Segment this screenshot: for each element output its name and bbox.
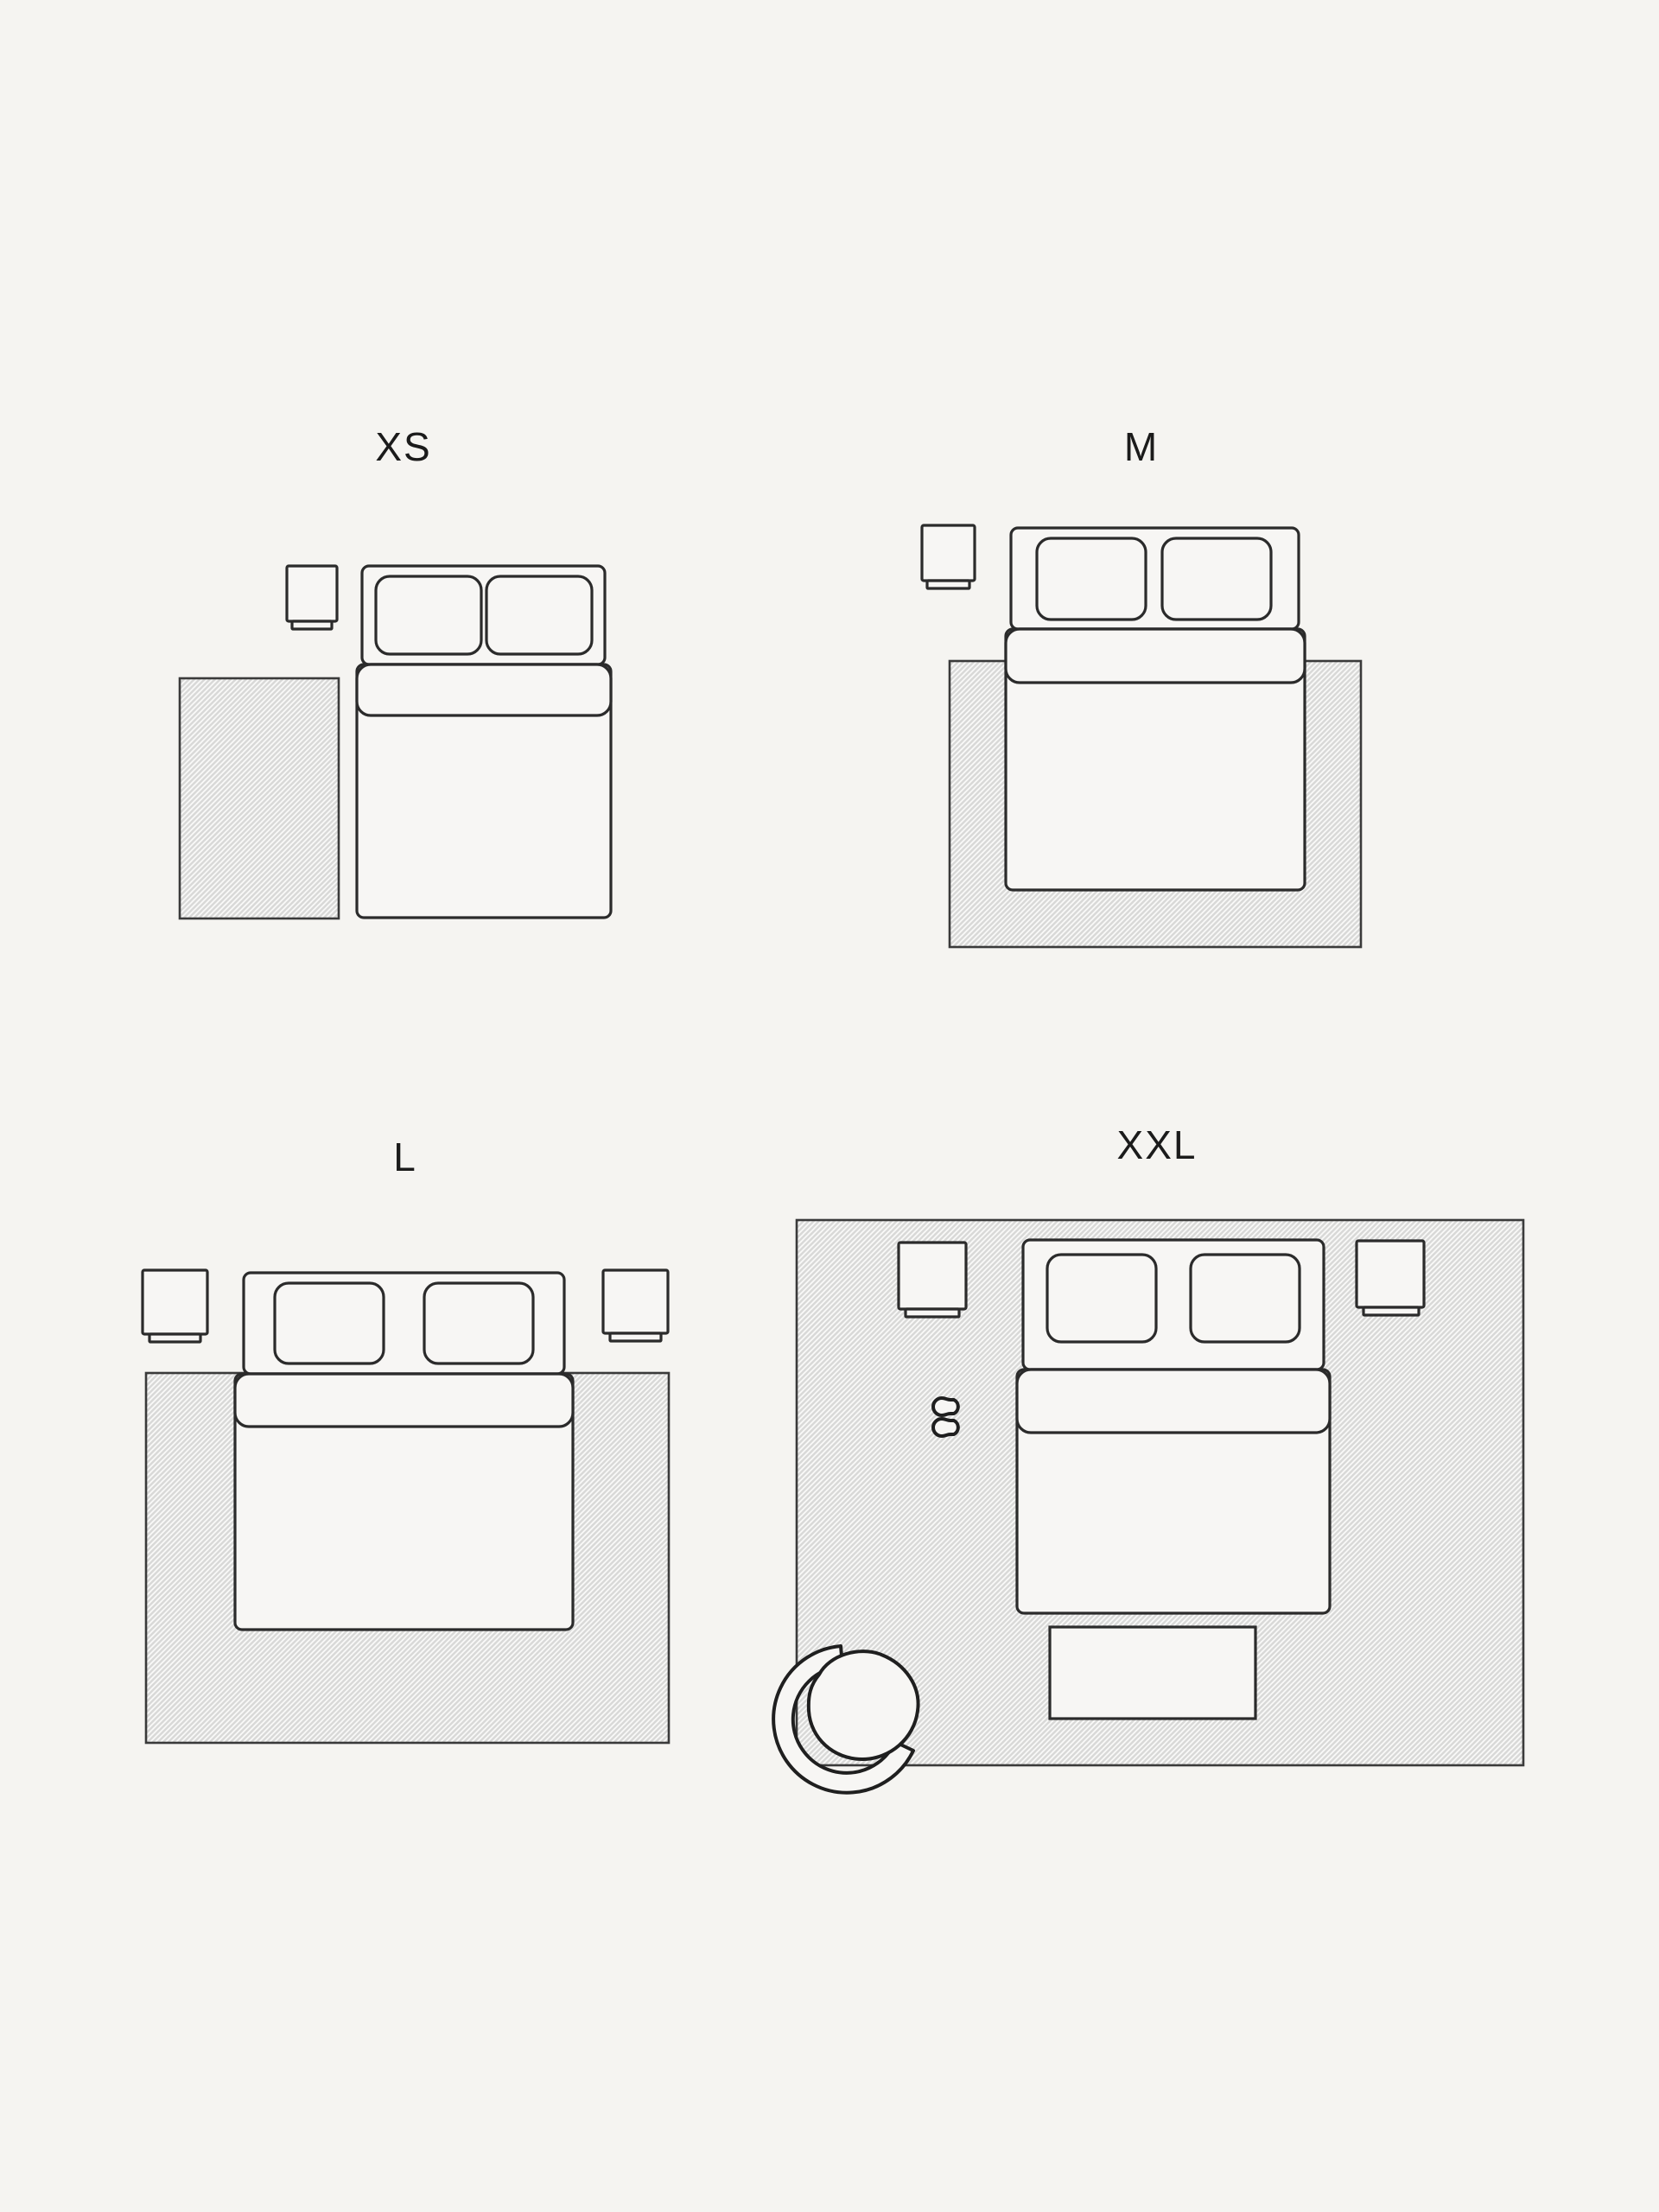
pillow-icon [1162, 538, 1271, 620]
nightstand-icon [603, 1270, 668, 1341]
duvet-fold [235, 1374, 573, 1427]
pillow-icon [275, 1283, 384, 1363]
nightstand-icon [1357, 1241, 1424, 1315]
pillow-icon [1037, 538, 1146, 620]
nightstand-icon [922, 525, 975, 588]
pillow-icon [376, 576, 481, 654]
nightstand-icon [143, 1270, 207, 1342]
size-option-l: L [143, 1135, 669, 1743]
size-option-m: M [922, 424, 1361, 947]
armchair-icon [773, 1646, 918, 1793]
nightstand-icon [287, 566, 337, 629]
size-option-xxl: XXL [773, 1122, 1523, 1793]
nightstand-icon [899, 1243, 966, 1317]
armchair-seat [809, 1651, 918, 1759]
bed-icon [1006, 528, 1305, 890]
rug-size-guide-canvas: XS M L [0, 0, 1659, 2212]
bed-icon [1017, 1240, 1330, 1613]
rug-icon [180, 678, 339, 918]
bed-icon [235, 1273, 573, 1630]
size-option-xs: XS [180, 424, 611, 918]
rug-size-guide: XS M L [0, 0, 1659, 2212]
pillow-icon [1047, 1255, 1156, 1342]
pillow-icon [1191, 1255, 1300, 1342]
bed-icon [357, 566, 611, 918]
bench-icon [1050, 1627, 1255, 1719]
duvet-fold [1017, 1370, 1330, 1433]
duvet-fold [357, 664, 611, 715]
size-label-m: M [1124, 424, 1159, 469]
size-label-xs: XS [375, 424, 431, 469]
size-label-xxl: XXL [1117, 1122, 1198, 1167]
pillow-icon [486, 576, 592, 654]
duvet-fold [1006, 629, 1305, 683]
pillow-icon [424, 1283, 533, 1363]
size-label-l: L [393, 1135, 417, 1179]
